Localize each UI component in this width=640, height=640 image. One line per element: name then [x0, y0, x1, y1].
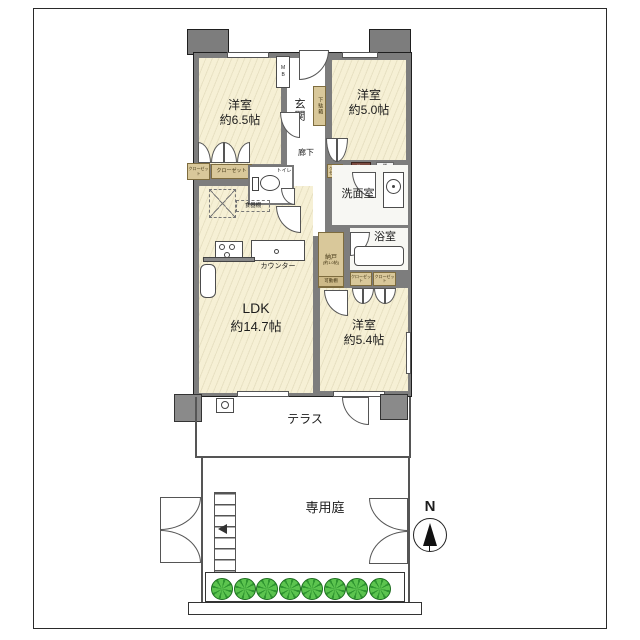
bush-icon — [211, 578, 233, 600]
garden-wall-right — [408, 457, 410, 603]
room-name: 洋室 — [228, 98, 252, 112]
closet-cell: クローゼット — [373, 272, 396, 286]
closet-label: クローゼット — [351, 275, 371, 284]
room-west-5_0-label: 洋室 約5.0帖 — [332, 88, 406, 118]
window-top-left — [227, 52, 269, 58]
bush-icon — [279, 578, 301, 600]
movable-shelf: 可動棚 — [318, 276, 344, 287]
shoe-cabinet-label: 下駄箱 — [317, 97, 323, 115]
bathtub — [354, 246, 404, 266]
garden-wall-left — [201, 457, 203, 603]
kitchen-sink — [200, 264, 216, 298]
compass-needle-icon — [423, 523, 437, 546]
counter-label: カウンター — [246, 263, 310, 272]
closet-wide: クローゼット — [211, 164, 252, 179]
bush-icon — [324, 578, 346, 600]
room-ldk-label: LDK 約14.7帖 — [199, 300, 313, 335]
meter-box: MB — [276, 56, 290, 88]
bush-icon — [301, 578, 323, 600]
closet-label: クローゼット — [188, 167, 209, 176]
toilet-bowl — [260, 175, 280, 191]
bush-icon — [369, 578, 391, 600]
window-right-wall — [406, 332, 411, 374]
corridor-label: 廊下 — [289, 148, 323, 158]
room-name: 洋室 — [357, 88, 381, 102]
bush-icon — [256, 578, 278, 600]
closet-small: クローゼット — [187, 163, 210, 180]
counter-sink-dot — [274, 249, 279, 254]
closet-label: クローゼット — [374, 275, 395, 284]
toilet-tank — [252, 177, 259, 191]
base-plate — [188, 602, 422, 615]
room-west-6_5-label: 洋室 約6.5帖 — [199, 98, 281, 128]
floor-plan: 洋室 約6.5帖 MB 玄関 下駄箱 廊下 洋室 約5.0帖 クローゼット クロ… — [0, 0, 640, 640]
dish-shelf-label: 食器棚 — [245, 203, 262, 210]
room-size: 約5.0帖 — [349, 103, 390, 117]
stove-burner — [219, 244, 225, 250]
shoe-cabinet: 下駄箱 — [313, 86, 326, 126]
room-size: 約6.5帖 — [220, 113, 261, 127]
refrigerator-space — [209, 189, 236, 218]
sliding-door-ldk — [237, 391, 289, 397]
terrace-label: テラス — [250, 412, 360, 427]
toilet-label: トイレ — [274, 168, 294, 174]
water-heater-dial — [221, 401, 229, 409]
nando-size-label: (約1.0帖) — [323, 261, 339, 265]
closet-label: クローゼット — [216, 169, 246, 175]
room-name: LDK — [242, 300, 269, 316]
garden-stairs — [214, 492, 236, 576]
stairs-arrow — [218, 524, 227, 534]
room-size: 約5.4帖 — [344, 333, 385, 347]
compass-north-label: N — [420, 498, 440, 517]
stove-burner — [229, 244, 235, 250]
room-west-5_4-label: 洋室 約5.4帖 — [320, 318, 408, 348]
bush-icon — [234, 578, 256, 600]
washing-machine-dot — [392, 185, 395, 188]
dish-shelf: 食器棚 — [236, 200, 270, 212]
room-name: 洋室 — [352, 318, 376, 332]
window-top-right — [342, 52, 378, 58]
movable-shelf-label: 可動棚 — [324, 279, 338, 284]
terrace-wall-left — [195, 397, 197, 457]
kitchen-divider — [203, 257, 255, 262]
room-size: 約14.7帖 — [230, 319, 281, 334]
closet-cell: クローゼット — [350, 272, 372, 286]
bathroom-label: 浴室 — [364, 231, 406, 245]
meter-box-label: MB — [277, 57, 289, 87]
garden-label: 専用庭 — [270, 500, 380, 516]
terrace-wall-right — [409, 397, 411, 457]
bush-icon — [346, 578, 368, 600]
compass-needle-tail — [429, 546, 430, 551]
washroom-label: 洗面室 — [330, 188, 386, 202]
pillar-terrace-right — [380, 394, 408, 420]
pillar-terrace-left — [174, 394, 202, 422]
terrace-garden-divider — [195, 456, 411, 458]
